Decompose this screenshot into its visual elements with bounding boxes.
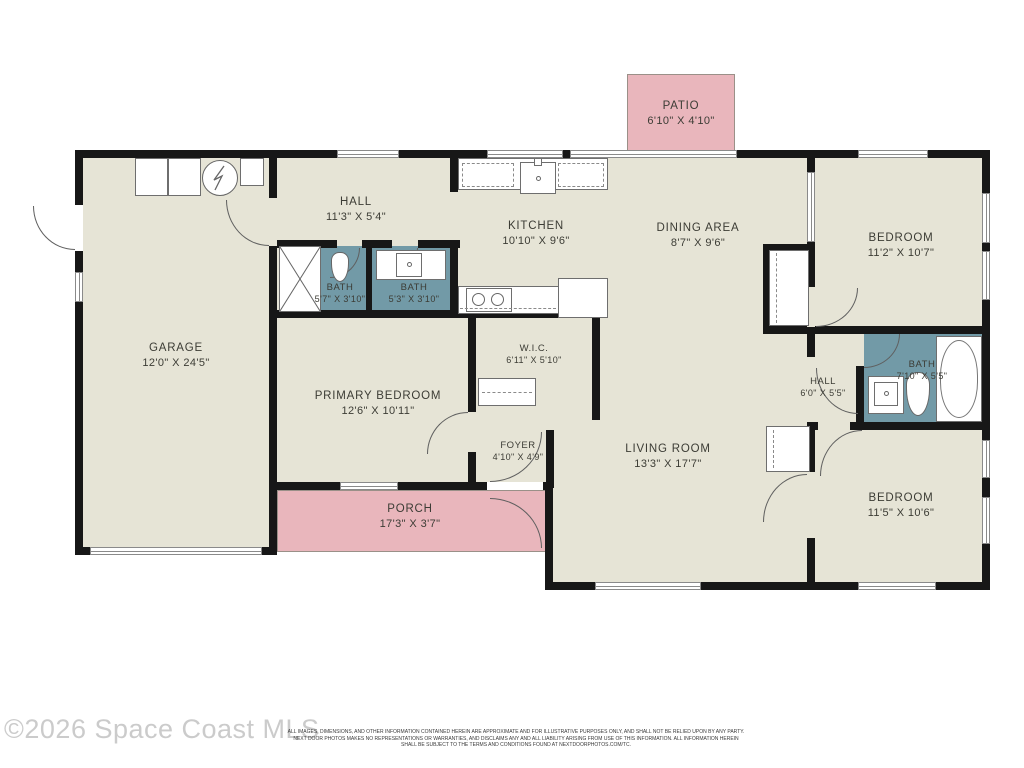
upper-cabinet <box>462 163 514 187</box>
disclaimer: ALL IMAGES, DIMENSIONS, AND OTHER INFORM… <box>287 729 745 749</box>
door-opening <box>269 198 277 246</box>
sink-drain <box>536 176 541 181</box>
room-name: BATH <box>315 282 366 293</box>
room-dims: 11'3" X 5'4" <box>326 211 386 223</box>
room-dims: 11'5" X 10'6" <box>868 507 935 519</box>
sink-drain <box>884 391 889 396</box>
room-dims: 11'2" X 10'7" <box>868 247 935 259</box>
room-label-primary: PRIMARY BEDROOM 12'6" X 10'11" <box>315 390 442 417</box>
window <box>75 272 83 302</box>
burner <box>491 293 504 306</box>
dryer-fixture <box>168 158 201 196</box>
room-label-garage: GARAGE 12'0" X 24'5" <box>142 342 209 369</box>
sliding-door <box>570 150 737 158</box>
room-label-wic: W.I.C. 6'11" X 5'10" <box>506 343 561 365</box>
floor-garage-lower <box>75 490 277 555</box>
room-name: PATIO <box>647 100 714 112</box>
counter-edge <box>460 308 556 309</box>
water-heater-icon <box>202 160 238 196</box>
room-name: W.I.C. <box>506 343 561 354</box>
wall <box>546 430 554 488</box>
watermark: ©2026 Space Coast MLS <box>4 714 320 745</box>
wall <box>468 452 476 490</box>
wall <box>850 422 990 430</box>
wall <box>468 318 476 412</box>
closet-rod <box>773 430 774 468</box>
room-dims: 12'6" X 10'11" <box>315 405 442 417</box>
door-opening <box>807 472 815 538</box>
room-dims: 6'11" X 5'10" <box>506 355 561 365</box>
wall <box>592 310 600 420</box>
disclaimer-line: SHALL BE SUBJECT TO THE TERMS AND CONDIT… <box>287 742 745 749</box>
window <box>982 251 990 300</box>
room-name: PRIMARY BEDROOM <box>315 390 442 402</box>
door-opening <box>75 205 83 251</box>
room-name: LIVING ROOM <box>625 443 710 455</box>
utility-fixture <box>240 158 264 186</box>
wall <box>807 150 815 172</box>
window <box>337 150 399 158</box>
kitchen-peninsula <box>558 278 608 318</box>
door-opening <box>468 412 476 452</box>
room-name: BEDROOM <box>868 492 935 504</box>
room-dims: 4'10" X 4'9" <box>493 452 544 462</box>
room-label-patio: PATIO 6'10" X 4'10" <box>647 100 714 127</box>
room-dims: 5'7" X 3'10" <box>315 294 366 304</box>
window <box>982 193 990 243</box>
room-name: GARAGE <box>142 342 209 354</box>
closet-rod <box>776 253 777 323</box>
sink-drain <box>407 262 412 267</box>
room-label-hall-right: HALL 6'0" X 5'5" <box>800 376 845 398</box>
room-label-dining: DINING AREA 8'7" X 9'6" <box>657 222 740 249</box>
door-opening <box>487 482 543 490</box>
washer-fixture <box>135 158 168 196</box>
room-dims: 12'0" X 24'5" <box>142 357 209 369</box>
room-name: BATH <box>897 359 948 370</box>
room-dims: 6'0" X 5'5" <box>800 388 845 398</box>
door-opening <box>818 422 850 430</box>
room-dims: 13'3" X 17'7" <box>625 458 710 470</box>
room-name: BATH <box>389 282 440 293</box>
room-label-bath-a: BATH 5'7" X 3'10" <box>315 282 366 304</box>
room-label-kitchen: KITCHEN 10'10" X 9'6" <box>502 220 569 247</box>
wall <box>545 482 553 590</box>
room-dims: 10'10" X 9'6" <box>502 235 569 247</box>
door-arc <box>33 206 75 250</box>
room-name: PORCH <box>380 503 441 515</box>
faucet <box>534 158 542 166</box>
room-label-bath-c: BATH 7'10" X 5'5" <box>897 359 948 381</box>
room-dims: 5'3" X 3'10" <box>389 294 440 304</box>
window <box>595 582 701 590</box>
door-opening <box>856 334 864 366</box>
room-dims: 6'10" X 4'10" <box>647 115 714 127</box>
room-name: HALL <box>326 196 386 208</box>
window <box>340 482 398 490</box>
wall <box>366 246 372 310</box>
closet-rod <box>482 392 532 393</box>
wall <box>807 538 815 582</box>
window <box>982 497 990 544</box>
window <box>982 440 990 478</box>
wall <box>450 240 458 318</box>
dining-closet <box>769 250 809 326</box>
floorplan-canvas: PATIO 6'10" X 4'10" HALL 11'3" X 5'4" KI… <box>0 0 1024 768</box>
upper-cabinet <box>558 163 604 187</box>
wall <box>763 326 815 334</box>
room-label-porch: PORCH 17'3" X 3'7" <box>380 503 441 530</box>
room-label-bedroom-br: BEDROOM 11'5" X 10'6" <box>868 492 935 519</box>
window <box>858 582 936 590</box>
room-dims: 17'3" X 3'7" <box>380 518 441 530</box>
room-name: BEDROOM <box>868 232 935 244</box>
window <box>487 150 563 158</box>
room-dims: 7'10" X 5'5" <box>897 371 948 381</box>
room-label-hall-top: HALL 11'3" X 5'4" <box>326 196 386 223</box>
wall <box>813 326 990 334</box>
room-dims: 8'7" X 9'6" <box>657 237 740 249</box>
room-name: KITCHEN <box>502 220 569 232</box>
room-name: DINING AREA <box>657 222 740 234</box>
disclaimer-line: ALL IMAGES, DIMENSIONS, AND OTHER INFORM… <box>287 729 745 736</box>
room-label-bedroom-tr: BEDROOM 11'2" X 10'7" <box>868 232 935 259</box>
window <box>858 150 928 158</box>
garage-door <box>90 547 262 555</box>
sliding-door <box>807 172 815 242</box>
room-name: HALL <box>800 376 845 387</box>
wall <box>450 150 458 192</box>
room-label-foyer: FOYER 4'10" X 4'9" <box>493 440 544 462</box>
room-label-bath-b: BATH 5'3" X 3'10" <box>389 282 440 304</box>
room-name: FOYER <box>493 440 544 451</box>
room-label-living: LIVING ROOM 13'3" X 17'7" <box>625 443 710 470</box>
burner <box>472 293 485 306</box>
